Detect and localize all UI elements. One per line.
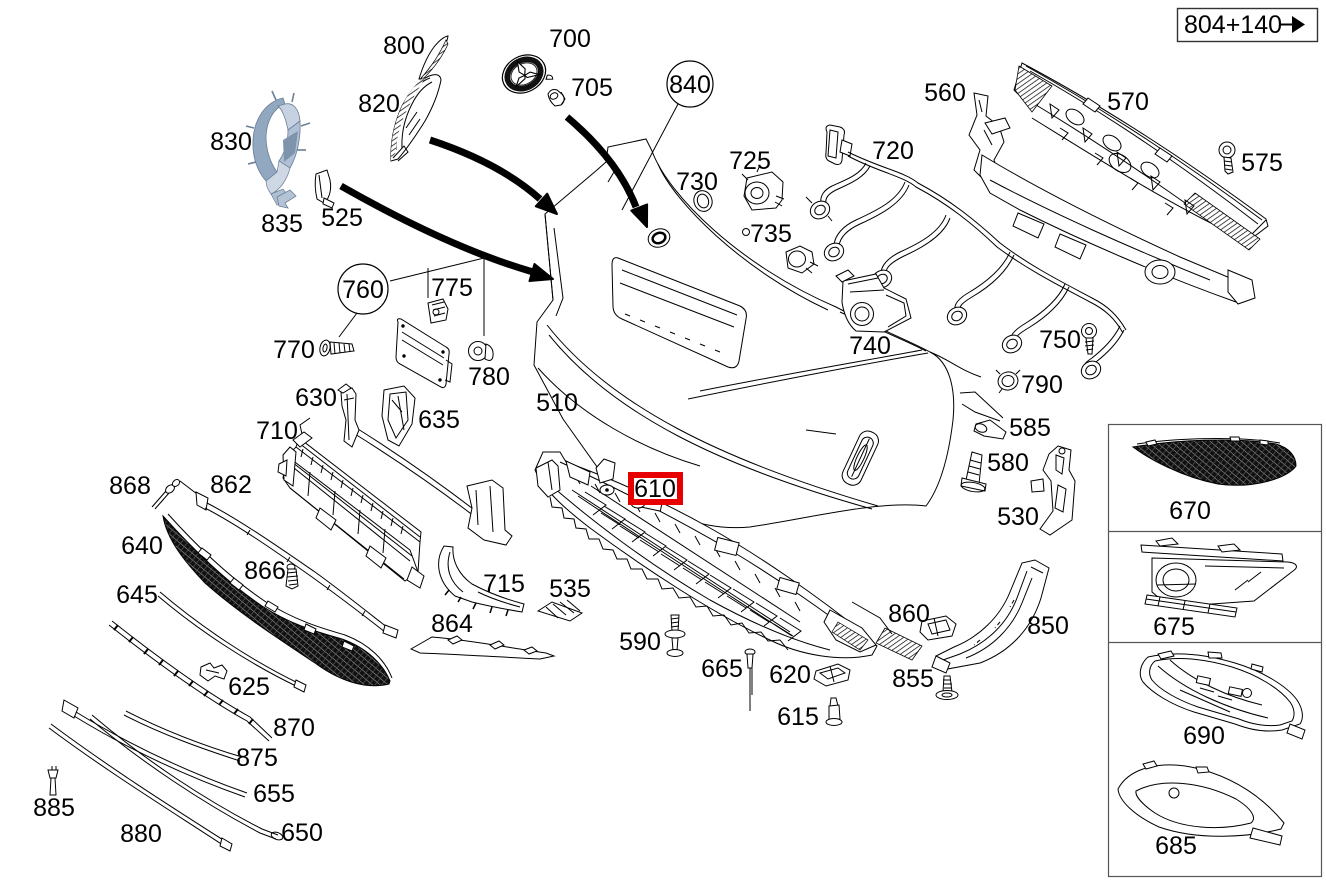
svg-text:570: 570 <box>1107 88 1149 116</box>
svg-text:862: 862 <box>210 471 252 499</box>
svg-text:868: 868 <box>109 472 151 500</box>
svg-text:875: 875 <box>236 744 278 772</box>
svg-text:645: 645 <box>116 581 158 609</box>
svg-text:620: 620 <box>769 661 811 689</box>
svg-text:535: 535 <box>549 575 591 603</box>
svg-text:864: 864 <box>431 610 473 638</box>
svg-text:530: 530 <box>997 503 1039 531</box>
svg-text:655: 655 <box>253 780 295 808</box>
svg-text:735: 735 <box>750 220 792 248</box>
svg-text:670: 670 <box>1169 497 1211 525</box>
svg-text:740: 740 <box>849 332 891 360</box>
svg-text:650: 650 <box>281 819 323 847</box>
svg-text:585: 585 <box>1009 414 1051 442</box>
svg-text:560: 560 <box>924 79 966 107</box>
svg-text:575: 575 <box>1241 149 1283 177</box>
svg-text:610: 610 <box>634 475 676 503</box>
svg-text:525: 525 <box>321 204 363 232</box>
svg-text:830: 830 <box>210 128 252 156</box>
svg-text:840: 840 <box>669 71 711 99</box>
svg-text:866: 866 <box>244 557 286 585</box>
svg-text:800: 800 <box>383 32 425 60</box>
svg-text:690: 690 <box>1183 722 1225 750</box>
svg-text:804+140: 804+140 <box>1184 11 1282 39</box>
svg-text:720: 720 <box>872 137 914 165</box>
svg-text:730: 730 <box>676 168 718 196</box>
svg-text:820: 820 <box>358 90 400 118</box>
svg-text:710: 710 <box>256 417 298 445</box>
svg-text:860: 860 <box>888 600 930 628</box>
svg-text:675: 675 <box>1153 613 1195 641</box>
svg-text:780: 780 <box>468 363 510 391</box>
svg-text:770: 770 <box>273 336 315 364</box>
svg-text:790: 790 <box>1021 371 1063 399</box>
svg-text:640: 640 <box>121 532 163 560</box>
svg-text:760: 760 <box>342 276 384 304</box>
svg-text:835: 835 <box>261 210 303 238</box>
svg-text:630: 630 <box>295 384 337 412</box>
svg-text:590: 590 <box>619 628 661 656</box>
svg-text:775: 775 <box>431 274 473 302</box>
svg-text:685: 685 <box>1155 832 1197 860</box>
svg-text:635: 635 <box>418 406 460 434</box>
svg-text:580: 580 <box>987 449 1029 477</box>
svg-text:725: 725 <box>729 147 771 175</box>
svg-text:615: 615 <box>777 703 819 731</box>
svg-text:870: 870 <box>273 714 315 742</box>
svg-text:850: 850 <box>1027 612 1069 640</box>
svg-text:665: 665 <box>701 655 743 683</box>
svg-text:625: 625 <box>228 673 270 701</box>
svg-text:705: 705 <box>571 74 613 102</box>
svg-text:510: 510 <box>536 389 578 417</box>
svg-text:855: 855 <box>892 665 934 693</box>
svg-text:750: 750 <box>1039 326 1081 354</box>
svg-text:885: 885 <box>33 794 75 822</box>
svg-text:715: 715 <box>483 570 525 598</box>
svg-text:880: 880 <box>120 820 162 848</box>
svg-text:700: 700 <box>549 25 591 53</box>
